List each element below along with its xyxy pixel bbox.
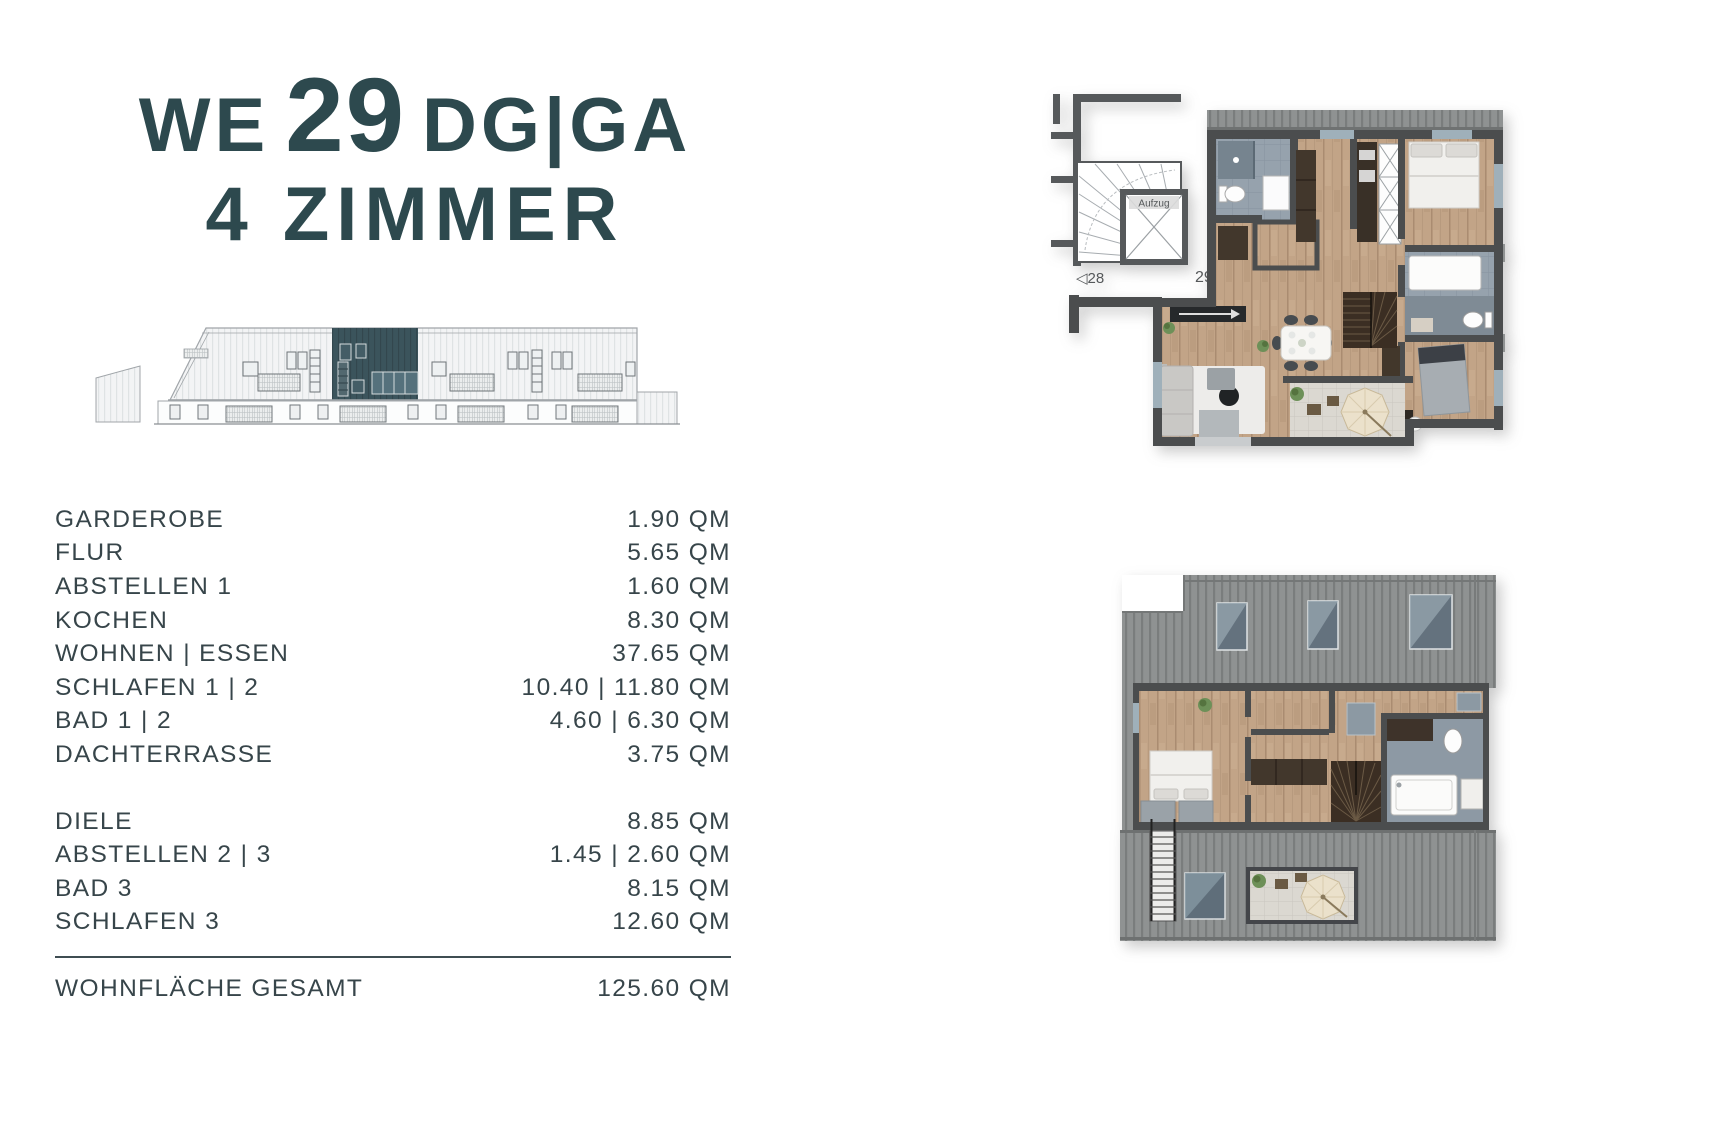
elevator: Aufzug [1123,192,1185,262]
title-prefix: WE [139,88,269,164]
table-row: ABSTELLEN 1 1.60 QM [55,570,731,604]
total-area: 125.60 QM [597,975,731,1003]
table-row: WOHNEN | ESSEN 37.65 QM [55,637,731,671]
floorplan-gallery-level [1013,523,1505,948]
room-group-main-level: GARDEROBE 1.90 QM FLUR 5.65 QM ABSTELLEN… [55,503,731,772]
room-area: 1.60 QM [627,573,731,601]
room-area: 8.85 QM [627,808,731,836]
room-area: 1.90 QM [627,506,731,534]
bathtub [1409,256,1481,290]
hall-cupboard [1296,150,1316,242]
room-area: 1.45 | 2.60 QM [550,841,731,869]
ottoman [1199,410,1239,438]
neighbor-unit-label: ◁28 [1076,270,1104,287]
room-area-table: GARDEROBE 1.90 QM FLUR 5.65 QM ABSTELLEN… [55,503,731,1006]
table-row: BAD 3 8.15 QM [55,872,731,906]
title-suffix: DG|GA [422,88,691,164]
unit-number: 29 [285,63,406,168]
table-row: ABSTELLEN 2 | 3 1.45 | 2.60 QM [55,838,731,872]
kitchen [1350,139,1401,244]
stairs-to-main-level [1331,761,1381,822]
roof-terrace [1283,376,1413,437]
table-row: DACHTERRASSE 3.75 QM [55,738,731,772]
room-label: FLUR [55,539,627,567]
sofa [1161,366,1193,436]
elevation-left-annex [96,366,140,422]
bath-2 [1405,245,1494,342]
room-area: 8.15 QM [627,875,731,903]
room-label: GARDEROBE [55,506,627,534]
room-area: 10.40 | 11.80 QM [522,674,731,702]
bathtub [1391,775,1457,815]
floorplan-main-level: Aufzug ◁28 29 ▷ [945,80,1505,452]
table-row: BAD 1 | 2 4.60 | 6.30 QM [55,705,731,739]
room-label: DIELE [55,808,627,836]
page-subtitle: 4 ZIMMER [95,177,735,253]
room-label: BAD 1 | 2 [55,707,550,735]
total-row: WOHNFLÄCHE GESAMT 125.60 QM [55,972,731,1006]
room-label: ABSTELLEN 2 | 3 [55,841,550,869]
terrace-recess [1246,867,1358,924]
roof-band-top [1122,575,1496,688]
room-label: WOHNEN | ESSEN [55,640,612,668]
title-block: WE 29 DG|GA 4 ZIMMER [95,63,735,253]
wardrobe [1218,226,1248,260]
window [1133,703,1139,733]
roof-band-bottom [1120,819,1496,941]
room-group-gallery-level: DIELE 8.85 QM ABSTELLEN 2 | 3 1.45 | 2.6… [55,805,731,939]
room-label: SCHLAFEN 1 | 2 [55,674,522,702]
room-area: 37.65 QM [612,640,731,668]
floorplan-sheet: WE 29 DG|GA 4 ZIMMER [0,0,1728,1128]
roof-ladder [1150,819,1176,921]
skylight-patch [1347,703,1375,735]
room-label: KOCHEN [55,607,627,635]
stairs-to-gallery [1343,292,1397,348]
table-row: KOCHEN 8.30 QM [55,604,731,638]
wardrobe [1179,801,1213,825]
room-area: 3.75 QM [627,741,731,769]
building-elevation [90,302,685,427]
hall-closet [1251,759,1327,785]
elevator-label: Aufzug [1138,199,1169,210]
page-title: WE 29 DG|GA [95,63,735,168]
shelf [1461,779,1483,809]
toilet [1444,729,1462,753]
room-label: BAD 3 [55,875,627,903]
room-area: 4.60 | 6.30 QM [550,707,731,735]
bath-3 [1381,713,1483,830]
wardrobe [1141,801,1175,825]
table-row: SCHLAFEN 3 12.60 QM [55,906,731,940]
skylight [1185,873,1225,919]
elevation-lower-floor [158,401,637,424]
room-label: ABSTELLEN 1 [55,573,627,601]
roof-railing [184,349,208,358]
room-area: 5.65 QM [627,539,731,567]
table-row: DIELE 8.85 QM [55,805,731,839]
vanity [1387,719,1433,741]
total-label: WOHNFLÄCHE GESAMT [55,975,597,1003]
elevation-right-wing [637,392,677,424]
room-area: 8.30 QM [627,607,731,635]
skylight-patch [1457,693,1481,711]
table-row: FLUR 5.65 QM [55,537,731,571]
bath-1 [1216,139,1298,223]
total-divider [55,956,731,958]
room-label: DACHTERRASSE [55,741,627,769]
table-row: GARDEROBE 1.90 QM [55,503,731,537]
room-area: 12.60 QM [612,908,731,936]
stairwell-annex: Aufzug [1051,94,1185,266]
table-row: SCHLAFEN 1 | 2 10.40 | 11.80 QM [55,671,731,705]
room-label: SCHLAFEN 3 [55,908,612,936]
